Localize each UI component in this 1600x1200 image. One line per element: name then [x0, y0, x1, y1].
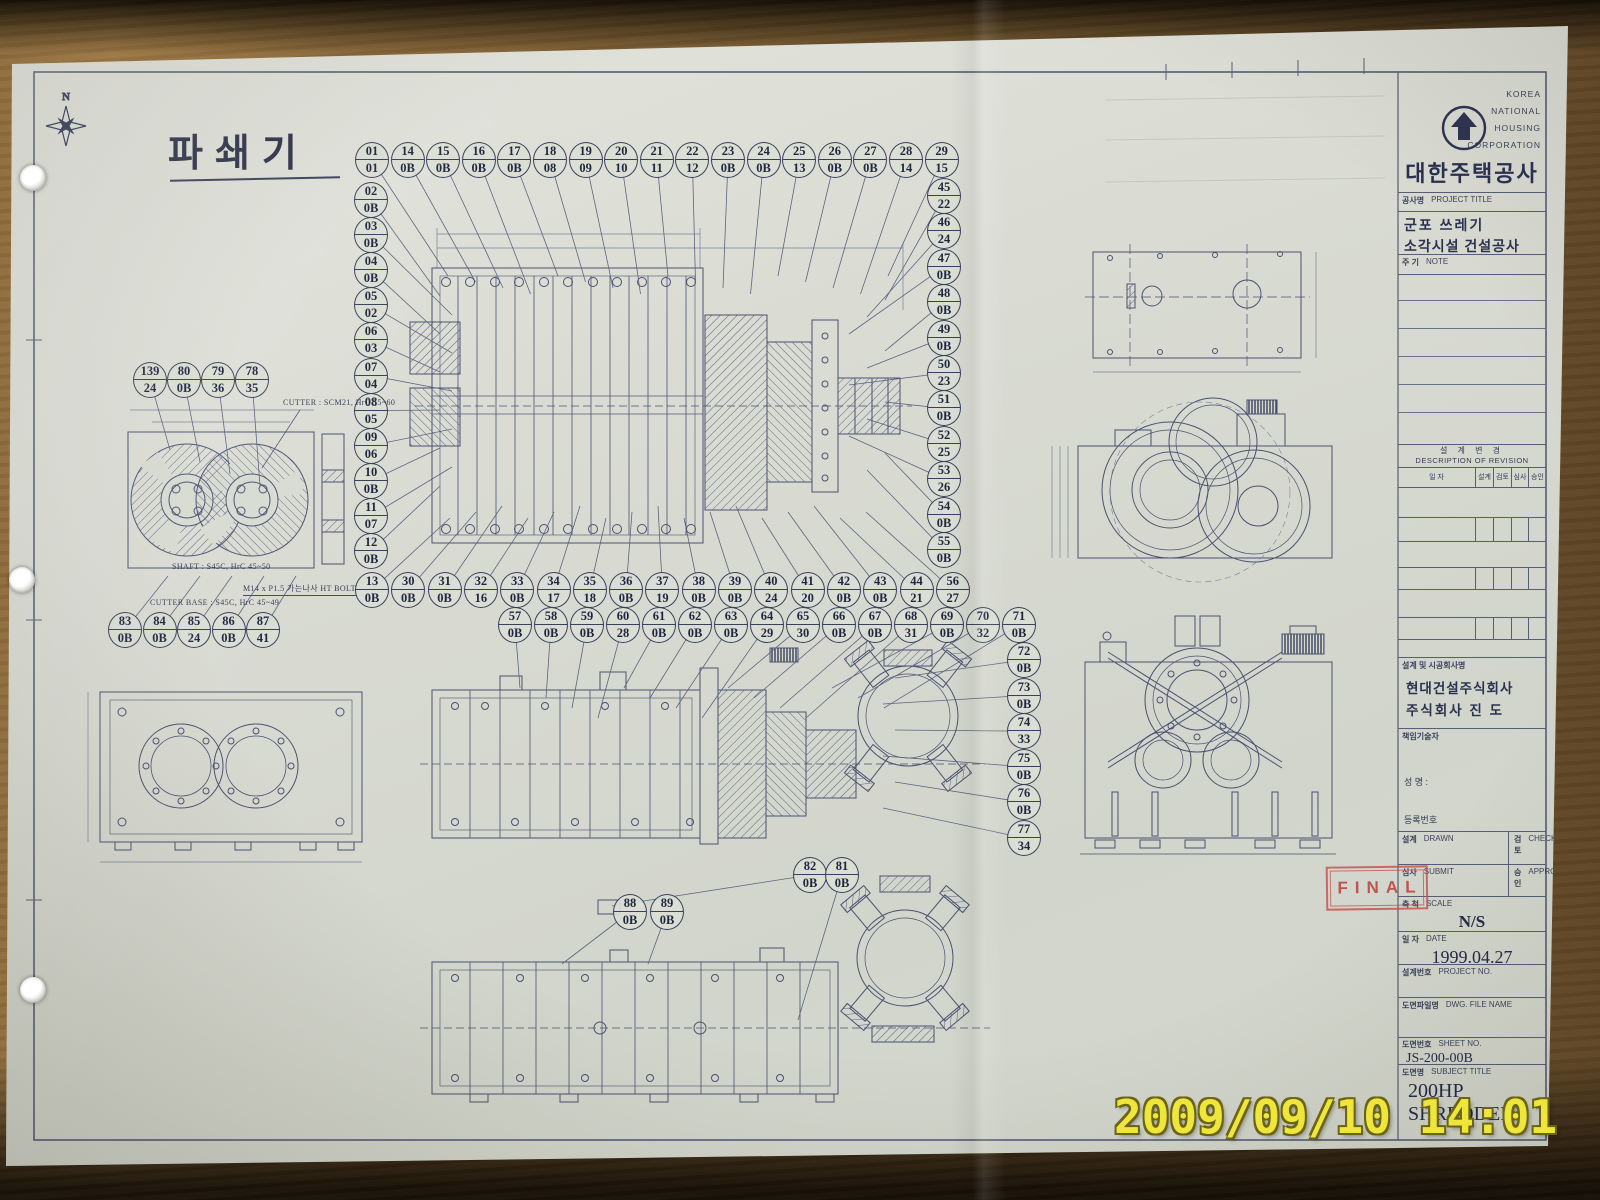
leader-line	[895, 730, 1024, 731]
date-section: 일 자 DATE 1999.04.27	[1398, 932, 1546, 965]
balloon-callout: 3518	[573, 572, 607, 608]
balloon-callout: 800B	[167, 362, 201, 398]
balloon-callout: 170B	[497, 142, 531, 178]
balloon-callout: 6530	[786, 607, 820, 643]
subject-label-kr: 도면명	[1402, 1067, 1424, 1078]
balloon-callout: 750B	[1007, 749, 1041, 785]
rev-col-review: 심사	[1512, 468, 1528, 482]
leader-line	[408, 160, 476, 282]
subject-label-en: SUBJECT TITLE	[1431, 1067, 1491, 1078]
balloon-callout: 880B	[613, 894, 647, 930]
balloon-callout: 510B	[927, 390, 961, 426]
corporation-name-kr: 대한주택공사	[1398, 156, 1546, 188]
balloon-callout: 2010	[604, 142, 638, 178]
balloon-callout: 4120	[791, 572, 825, 608]
company-section: 설계 및 시공회사명 현대건설주식회사 주식회사 진 도	[1398, 658, 1546, 729]
balloon-callout: 730B	[1007, 678, 1041, 714]
revision-row	[1398, 488, 1546, 518]
project-title-line1: 군포 쓰레기	[1398, 212, 1546, 235]
company-label: 설계 및 시공회사명	[1402, 660, 1465, 671]
balloon-callout: 840B	[143, 612, 177, 648]
balloon-callout: 140B	[391, 142, 425, 178]
leader-line	[479, 160, 531, 294]
corporation-section: KOREA NATIONAL HOUSING CORPORATION 대한주택공…	[1398, 72, 1546, 193]
leader-line	[833, 160, 870, 288]
balloon-callout: 2111	[640, 142, 674, 178]
revision-row	[1398, 518, 1546, 542]
leader-line	[883, 808, 1024, 838]
balloon-callout: 1909	[569, 142, 603, 178]
project-title-section: 공사명 PROJECT TITLE 군포 쓰레기 소각시설 건설공사	[1398, 193, 1546, 255]
balloon-callout: 4522	[927, 178, 961, 214]
revision-row	[1398, 618, 1546, 640]
balloon-callout: 570B	[498, 607, 532, 643]
date-label-en: DATE	[1426, 934, 1447, 945]
revision-header-kr: 설 계 변 경	[1398, 445, 1546, 456]
balloon-callout: 8524	[177, 612, 211, 648]
punch-hole	[20, 977, 46, 1003]
photo-of-blueprint: N	[0, 0, 1600, 1200]
rev-col-check: 검토	[1494, 468, 1511, 482]
note-label-kr: 주 기	[1402, 257, 1419, 268]
approval-label-kr: 승인	[1514, 867, 1521, 889]
balloon-callout: 8741	[246, 612, 280, 648]
revision-row	[1398, 542, 1546, 568]
scale-label-en: SCALE	[1426, 899, 1452, 910]
check-label-en: CHECK	[1528, 834, 1556, 856]
submit-label-en: SUBMIT	[1424, 867, 1454, 878]
dwg-file-section: 도면파일명 DWG. FILE NAME	[1398, 998, 1546, 1038]
rev-col-date: 일 자	[1398, 468, 1475, 482]
balloon-callout: 4024	[754, 572, 788, 608]
balloon-callout: 4421	[900, 572, 934, 608]
leader-line	[895, 782, 1024, 802]
blueprint-sheet: N	[0, 0, 1600, 1200]
balloon-callout: 120B	[354, 533, 388, 569]
balloon-callout: 230B	[711, 142, 745, 178]
balloon-callout: 2814	[889, 142, 923, 178]
note-label-row: 주 기 NOTE	[1398, 255, 1546, 275]
engineer-section: 책임기술자 성 명 : 등록번호	[1398, 729, 1546, 832]
note-label-en: NOTE	[1426, 257, 1448, 268]
balloon-callout: 1107	[354, 498, 388, 534]
balloon-callout: 3417	[537, 572, 571, 608]
revision-row	[1398, 640, 1546, 658]
balloon-callout: 490B	[927, 320, 961, 356]
sheet-no-label-kr: 도면번호	[1402, 1039, 1431, 1050]
note-cutter: CUTTER : SCM21, HrC 55~60	[283, 398, 395, 407]
balloon-callout: 4624	[927, 213, 961, 249]
balloon-callout: 0704	[354, 358, 388, 394]
punch-hole	[9, 567, 35, 593]
balloon-callout: 5326	[927, 461, 961, 497]
balloon-callout: 2513	[782, 142, 816, 178]
balloon-callout: 7032	[966, 607, 1000, 643]
rev-col-design: 설계	[1476, 468, 1493, 482]
balloon-callout: 760B	[1007, 784, 1041, 820]
balloon-callout: 3719	[645, 572, 679, 608]
corporation-name-en: KOREA NATIONAL HOUSING CORPORATION	[1467, 86, 1541, 154]
drawn-check-row: 설계 DRAWN 검토 CHECK	[1398, 832, 1546, 865]
project-no-section: 설계번호 PROJECT NO.	[1398, 965, 1546, 998]
check-label-kr: 검토	[1514, 834, 1521, 856]
balloon-callout: 660B	[822, 607, 856, 643]
project-no-label-en: PROJECT NO.	[1438, 967, 1492, 978]
balloon-callout: 270B	[853, 142, 887, 178]
revision-columns: 일 자 설계 검토 심사 승인	[1398, 468, 1546, 488]
balloon-callout: 310B	[428, 572, 462, 608]
final-stamp: FINAL	[1326, 865, 1429, 910]
dwg-file-label-en: DWG. FILE NAME	[1446, 1000, 1512, 1011]
balloon-callout: 100B	[354, 463, 388, 499]
balloon-callout: 030B	[354, 217, 388, 253]
punch-hole	[20, 165, 46, 191]
revision-row	[1398, 590, 1546, 618]
leader-line	[723, 160, 728, 288]
leader-line	[751, 160, 764, 294]
revision-header-en: DESCRIPTION OF REVISION	[1398, 456, 1546, 465]
balloon-callout: 630B	[714, 607, 748, 643]
leader-line	[806, 160, 835, 282]
balloon-callout: 580B	[534, 607, 568, 643]
balloon-callout: 3216	[464, 572, 498, 608]
engineer-name-label: 성 명 :	[1404, 775, 1428, 788]
leader-line	[798, 875, 842, 1020]
leader-line	[883, 756, 1024, 767]
leader-line	[586, 160, 613, 288]
balloon-callout: 380B	[682, 572, 716, 608]
balloon-callout: 0502	[354, 287, 388, 323]
approval-label-en: APPROVAL	[1528, 867, 1571, 889]
balloon-callout: 6831	[894, 607, 928, 643]
balloon-callout: 390B	[718, 572, 752, 608]
balloon-callout: 0906	[354, 428, 388, 464]
balloon-callout: 13924	[133, 362, 167, 398]
balloon-callout: 6028	[606, 607, 640, 643]
leader-line	[443, 160, 503, 288]
balloon-callout: 040B	[354, 252, 388, 288]
balloon-callout: 830B	[108, 612, 142, 648]
balloon-callout: 470B	[927, 249, 961, 285]
balloon-callout: 020B	[354, 182, 388, 218]
balloon-callout: 860B	[212, 612, 246, 648]
balloon-callout: 7433	[1007, 713, 1041, 749]
leader-line	[550, 160, 586, 282]
balloon-callout: 7734	[1007, 820, 1041, 856]
balloon-callout: 420B	[827, 572, 861, 608]
company-name-1: 현대건설주식회사	[1398, 673, 1546, 697]
scale-value: N/S	[1398, 912, 1546, 932]
revision-row	[1398, 568, 1546, 590]
balloon-callout: 5627	[936, 572, 970, 608]
project-no-label-kr: 설계번호	[1402, 967, 1431, 978]
leader-line	[861, 160, 907, 294]
balloon-callout: 330B	[500, 572, 534, 608]
balloon-callout: 720B	[1007, 642, 1041, 678]
engineer-label: 책임기술자	[1402, 731, 1439, 742]
balloon-callout: 240B	[747, 142, 781, 178]
balloon-callout: 550B	[927, 532, 961, 568]
balloon-callout: 0603	[354, 322, 388, 358]
leader-line	[621, 160, 640, 294]
page-title: 파쇄기	[168, 122, 309, 177]
note-cutter-base: CUTTER BASE : S45C, HrC 45~49	[150, 598, 279, 607]
balloon-callout: 5023	[927, 355, 961, 391]
balloon-callout: 300B	[391, 572, 425, 608]
revision-header: 설 계 변 경 DESCRIPTION OF REVISION	[1398, 445, 1546, 468]
balloon-callout: 260B	[818, 142, 852, 178]
title-block: KOREA NATIONAL HOUSING CORPORATION 대한주택공…	[1398, 72, 1546, 1140]
balloon-callout: 890B	[650, 894, 684, 930]
note-bolt: M14 x P1.5 가는나사 HT BOLT	[243, 583, 356, 596]
balloon-callout: 7835	[235, 362, 269, 398]
leader-line	[895, 660, 1024, 678]
company-name-2: 주식회사 진 도	[1398, 697, 1546, 721]
project-label-kr: 공사명	[1402, 195, 1424, 209]
balloon-callout: 540B	[927, 497, 961, 533]
note-area	[1398, 275, 1546, 445]
balloon-callout: 7936	[201, 362, 235, 398]
project-label-en: PROJECT TITLE	[1431, 195, 1492, 209]
balloon-callout: 810B	[825, 857, 859, 893]
balloon-callout: 160B	[462, 142, 496, 178]
balloon-callout: 670B	[858, 607, 892, 643]
date-label-kr: 일 자	[1402, 934, 1419, 945]
sheet-no-section: 도면번호 SHEET NO. JS-200-00B	[1398, 1038, 1546, 1065]
balloon-callout: 1808	[533, 142, 567, 178]
balloon-callout: 130B	[355, 572, 389, 608]
drawn-label-kr: 설계	[1402, 834, 1417, 845]
balloon-callout: 430B	[863, 572, 897, 608]
rev-col-approve: 승인	[1529, 468, 1546, 482]
drawn-label-en: DRAWN	[1424, 834, 1454, 845]
balloon-callout: 2915	[925, 142, 959, 178]
balloon-callout: 5225	[927, 426, 961, 462]
balloon-callout: 6429	[750, 607, 784, 643]
balloon-callout: 0101	[355, 142, 389, 178]
balloon-callout: 710B	[1002, 607, 1036, 643]
balloon-callout: 590B	[570, 607, 604, 643]
balloon-callout: 480B	[927, 284, 961, 320]
balloon-callout: 610B	[642, 607, 676, 643]
camera-timestamp: 2009/09/10 14:01	[1114, 1090, 1557, 1144]
balloon-callout: 360B	[609, 572, 643, 608]
engineer-reg-label: 등록번호	[1404, 813, 1437, 826]
note-shaft: SHAFT : S45C, HrC 45~50	[172, 562, 271, 571]
balloon-callout: 150B	[426, 142, 460, 178]
balloon-callout: 690B	[930, 607, 964, 643]
balloon-callout: 620B	[678, 607, 712, 643]
leader-line	[883, 696, 1024, 704]
sheet-no-label-en: SHEET NO.	[1438, 1039, 1481, 1050]
project-title-line2: 소각시설 건설공사	[1398, 235, 1546, 257]
balloon-callout: 820B	[793, 857, 827, 893]
balloon-callout: 2212	[675, 142, 709, 178]
leader-line	[692, 160, 695, 282]
dwg-file-label-kr: 도면파일명	[1402, 1000, 1439, 1011]
